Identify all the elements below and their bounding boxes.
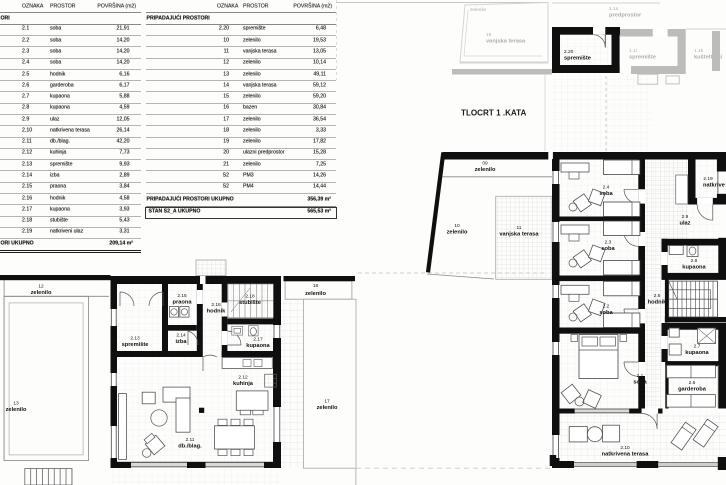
svg-text:spremište: spremište [564,55,591,61]
svg-text:2.16: 2.16 [211,302,221,308]
svg-text:18: 18 [313,283,319,289]
svg-text:db./blag.: db./blag. [178,443,202,449]
svg-text:2.2: 2.2 [603,304,610,310]
svg-text:2.15: 2.15 [177,293,187,299]
svg-text:2.13: 2.13 [130,336,140,342]
svg-text:zelenilo: zelenilo [305,291,326,297]
svg-text:kupaona: kupaona [685,350,709,356]
svg-text:ulaz: ulaz [679,220,690,226]
svg-text:natkrive: natkrive [703,182,725,188]
svg-text:2.11: 2.11 [186,437,195,443]
svg-text:11: 11 [517,225,522,231]
svg-text:10: 10 [454,223,460,229]
svg-text:17: 17 [324,399,330,405]
svg-text:soba: soba [599,310,613,316]
svg-text:hodnik: hodnik [648,299,667,305]
svg-text:zelenilo: zelenilo [317,405,338,411]
svg-text:natkrivena terasa: natkrivena terasa [602,451,650,457]
svg-text:zelenilo: zelenilo [6,407,27,413]
svg-text:hodnik: hodnik [207,308,226,314]
svg-text:izba: izba [175,339,187,345]
svg-text:zelenilo: zelenilo [447,229,468,235]
svg-text:2.8: 2.8 [691,258,698,264]
svg-text:2.19: 2.19 [703,176,713,182]
svg-text:kuhinja: kuhinja [233,381,254,387]
svg-text:1.1s: 1.1s [609,6,619,12]
svg-text:kupaona: kupaona [246,343,270,349]
svg-text:2.18: 2.18 [245,294,255,300]
svg-text:2.20: 2.20 [564,49,574,55]
svg-text:zelenilo: zelenilo [31,290,52,296]
svg-text:vanjska terasa: vanjska terasa [486,38,526,44]
svg-text:soba: soba [599,191,613,197]
svg-text:predprostor: predprostor [609,12,642,18]
svg-text:1.1i: 1.1i [629,48,637,54]
svg-text:spremište: spremište [122,342,149,348]
svg-text:2.14: 2.14 [176,333,186,339]
svg-text:zelenilo: zelenilo [470,7,487,13]
svg-text:2.4: 2.4 [603,185,610,191]
svg-text:2.5: 2.5 [654,293,661,299]
svg-text:garderoba: garderoba [678,386,707,392]
svg-text:praona: praona [173,299,193,305]
svg-text:TLOCRT 1 .KATA: TLOCRT 1 .KATA [461,109,526,118]
svg-text:13: 13 [13,401,19,407]
svg-text:kupaona: kupaona [682,264,706,270]
svg-text:2.1: 2.1 [637,373,644,379]
svg-text:2.10: 2.10 [620,445,630,451]
svg-text:soba: soba [601,246,615,252]
svg-text:soba: soba [633,379,647,385]
svg-text:2.17: 2.17 [253,337,263,343]
svg-text:1.1k: 1.1k [694,48,704,54]
svg-text:zelenilo: zelenilo [475,167,496,173]
svg-text:12: 12 [38,284,44,290]
svg-text:16: 16 [486,32,492,38]
svg-text:2.12: 2.12 [238,375,248,381]
svg-text:2.7: 2.7 [694,344,701,350]
svg-text:09: 09 [482,161,488,167]
svg-text:2.9: 2.9 [682,214,689,220]
svg-text:stubište: stubište [239,300,261,306]
svg-text:spremište: spremište [629,54,656,60]
svg-text:2.3: 2.3 [605,240,612,246]
svg-text:vanjska terasa: vanjska terasa [499,231,539,237]
svg-text:2.6: 2.6 [689,380,696,386]
